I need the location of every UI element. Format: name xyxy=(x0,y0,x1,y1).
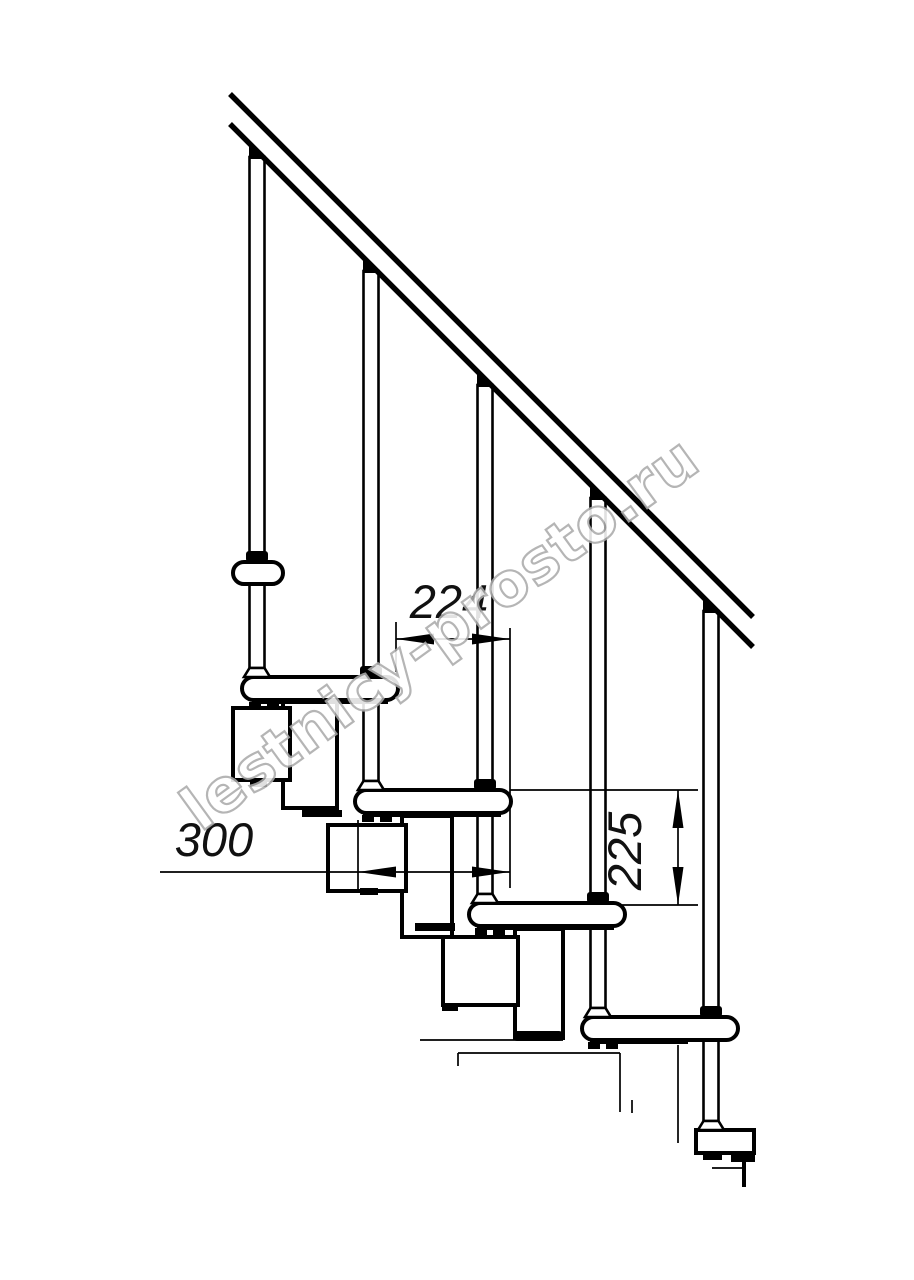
module-box xyxy=(328,825,406,891)
tread-3 xyxy=(469,903,625,926)
baluster-1 xyxy=(250,157,265,668)
module-box xyxy=(515,929,563,1038)
baluster-4 xyxy=(591,498,606,1008)
rail-bracket xyxy=(233,562,283,584)
tread-5-partial xyxy=(696,1130,754,1153)
dim-rise-label: 225 xyxy=(598,811,651,891)
baluster-5 xyxy=(704,611,719,1121)
module-lower-lines xyxy=(420,1040,678,1143)
module-box xyxy=(402,816,452,937)
tread-2 xyxy=(355,790,511,813)
arrow-up-icon xyxy=(673,790,684,828)
module-box xyxy=(443,937,518,1005)
tread-4 xyxy=(582,1017,738,1040)
arrow-down-icon xyxy=(673,867,684,905)
drawing-canvas: 224 300 225 lestnicy-prosto.ru xyxy=(0,0,914,1280)
staircase-drawing: 224 300 225 lestnicy-prosto.ru xyxy=(0,0,914,1280)
